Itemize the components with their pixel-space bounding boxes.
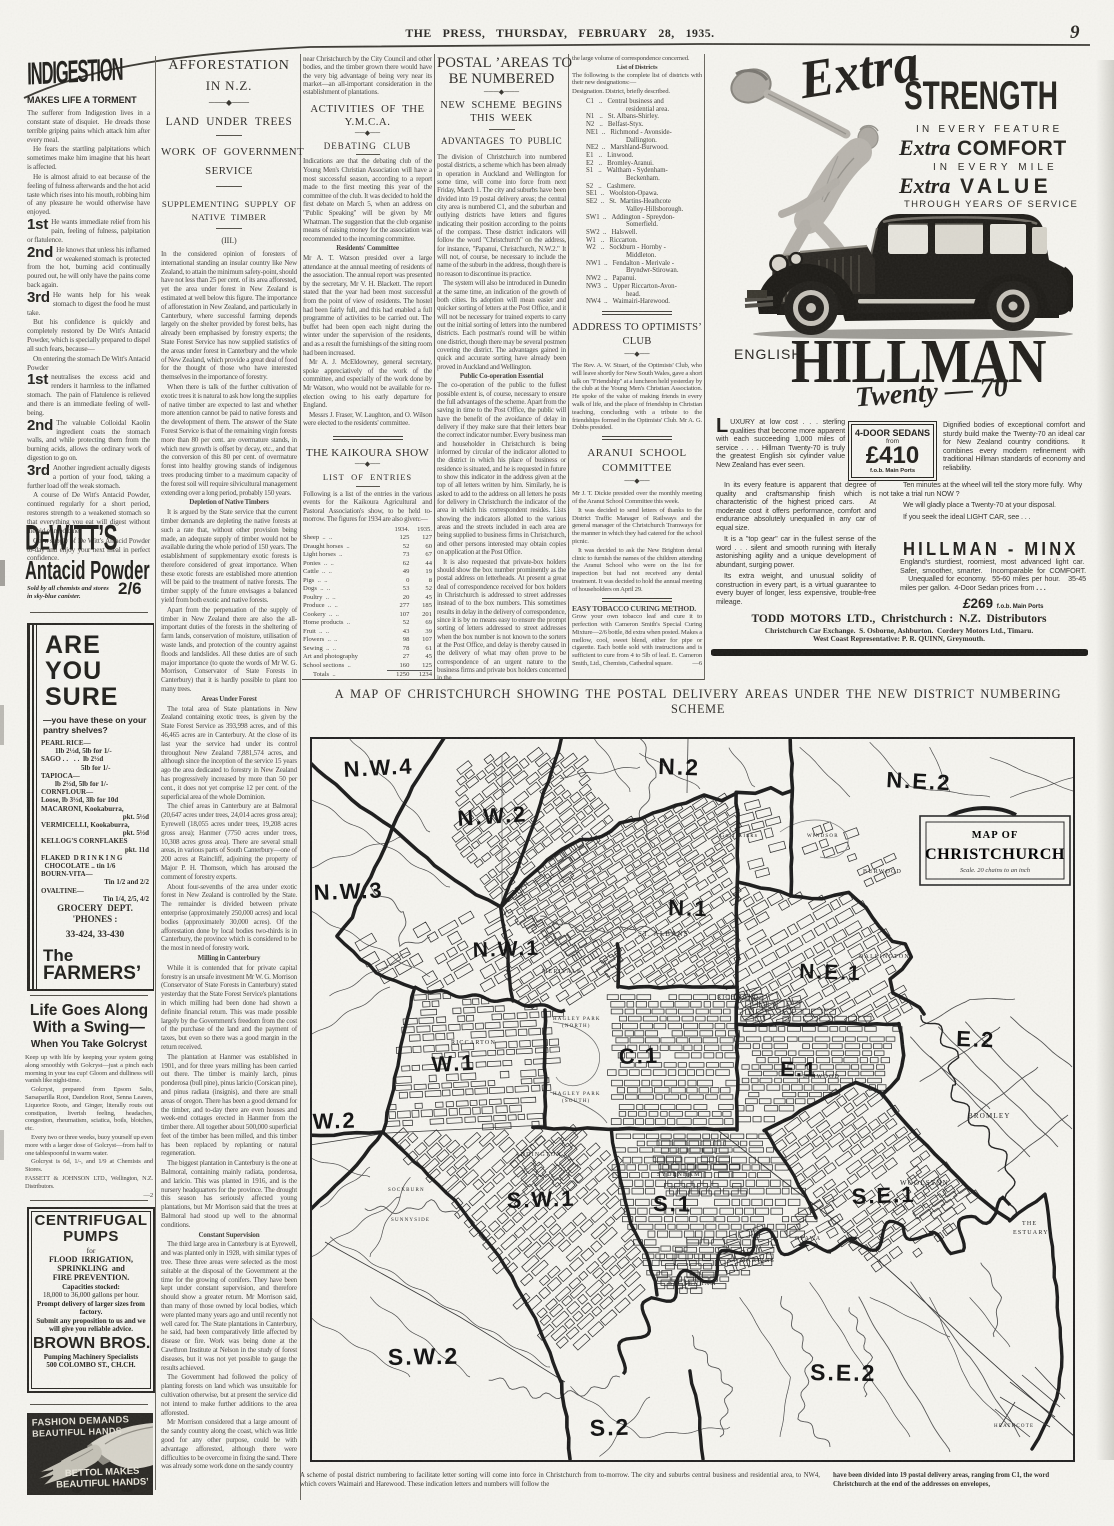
svg-text:SYDENHAM: SYDENHAM <box>657 1172 701 1178</box>
svg-text:WINDSOR: WINDSOR <box>807 834 839 839</box>
svg-text:BURWOOD: BURWOOD <box>863 869 902 875</box>
svg-text:RICHMOND: RICHMOND <box>717 995 759 1001</box>
svg-text:E.2: E.2 <box>956 1026 996 1052</box>
svg-text:HAGLEY PARK: HAGLEY PARK <box>553 1017 601 1022</box>
svg-text:N.W.4: N.W.4 <box>343 753 414 782</box>
svg-text:WOOLSTON: WOOLSTON <box>900 1179 949 1187</box>
svg-text:DALLINGTON: DALLINGTON <box>859 954 910 960</box>
svg-text:OPAWA: OPAWA <box>795 1236 821 1242</box>
svg-text:THE: THE <box>1022 1221 1037 1227</box>
svg-text:ST MARTINS: ST MARTINS <box>728 1258 775 1264</box>
svg-text:Golf Links: Golf Links <box>720 832 758 839</box>
svg-text:LINWOOD: LINWOOD <box>803 1074 840 1080</box>
svg-text:SUNNYSIDE: SUNNYSIDE <box>391 1218 430 1223</box>
svg-text:S.2: S.2 <box>589 1414 630 1441</box>
svg-text:N.W.1: N.W.1 <box>472 937 540 962</box>
svg-text:S.W.1: S.W.1 <box>506 1186 576 1213</box>
svg-text:ADDINGTON: ADDINGTON <box>515 1152 562 1158</box>
svg-text:W.2: W.2 <box>312 1107 357 1134</box>
svg-text:HAGLEY PARK: HAGLEY PARK <box>553 1092 601 1097</box>
svg-text:(SOUTH): (SOUTH) <box>562 1099 590 1104</box>
svg-text:S.1: S.1 <box>653 1191 692 1217</box>
svg-text:N.W.2: N.W.2 <box>457 801 528 831</box>
svg-text:N.E.2: N.E.2 <box>886 767 952 795</box>
svg-text:C.1: C.1 <box>618 1043 659 1069</box>
svg-text:ST. ALBANS: ST. ALBANS <box>638 930 689 938</box>
svg-text:BROMLEY: BROMLEY <box>968 1112 1011 1120</box>
svg-text:Scale. 20 chains to an inch: Scale. 20 chains to an inch <box>960 867 1030 874</box>
svg-text:MERIVALE: MERIVALE <box>542 969 582 975</box>
svg-text:RICCARTON: RICCARTON <box>451 1040 496 1046</box>
svg-text:S.W.2: S.W.2 <box>388 1343 460 1370</box>
svg-text:N.W.3: N.W.3 <box>313 878 384 905</box>
svg-text:CHRISTCHURCH: CHRISTCHURCH <box>925 845 1065 863</box>
svg-text:SOCKBURN: SOCKBURN <box>388 1188 425 1193</box>
svg-text:N.E.1: N.E.1 <box>799 960 862 985</box>
svg-text:ESTUARY: ESTUARY <box>1013 1230 1049 1236</box>
svg-text:N.1: N.1 <box>668 895 709 921</box>
svg-text:W.1: W.1 <box>431 1050 476 1077</box>
svg-text:BECKENHAM: BECKENHAM <box>668 1281 717 1287</box>
svg-text:HEATHCOTE: HEATHCOTE <box>994 1424 1034 1429</box>
svg-text:(NORTH): (NORTH) <box>562 1024 591 1029</box>
svg-text:N.2: N.2 <box>658 753 701 780</box>
svg-text:S.E.2: S.E.2 <box>810 1359 877 1386</box>
svg-text:MAP OF: MAP OF <box>972 830 1019 841</box>
